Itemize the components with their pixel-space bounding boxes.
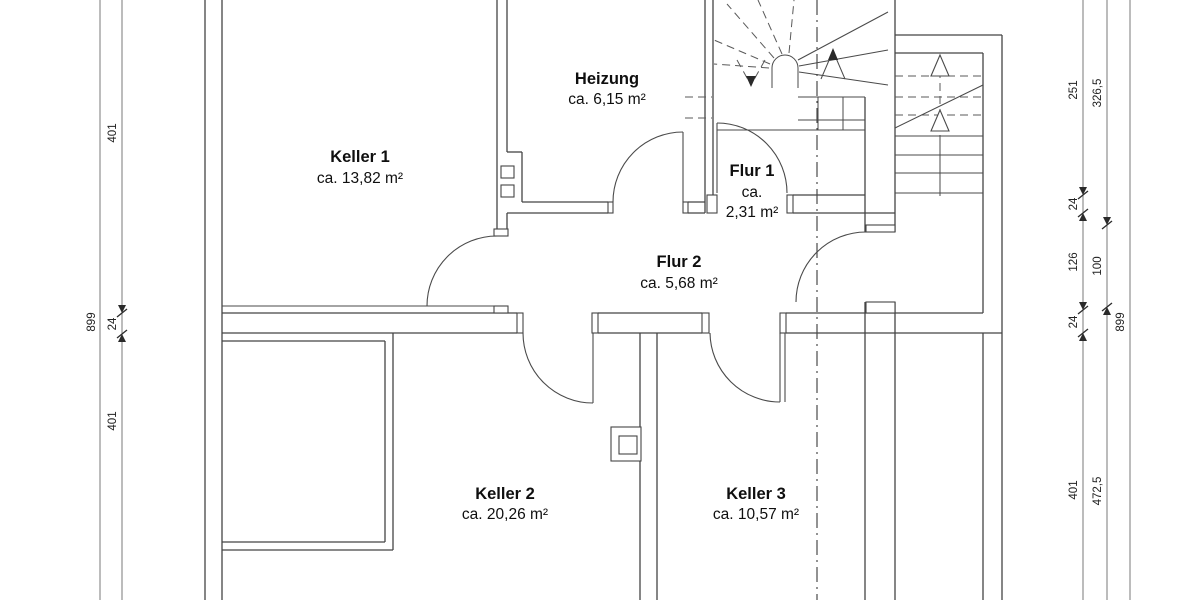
room-label-flur2: Flur 2 bbox=[657, 253, 702, 271]
room-area-flur2: ca. 5,68 m² bbox=[640, 275, 718, 292]
keller2-partition bbox=[222, 333, 393, 550]
winder-staircase bbox=[685, 0, 888, 130]
straight-staircase bbox=[895, 55, 983, 196]
floor-plan-canvas: Keller 1 ca. 13,82 m² Heizung ca. 6,15 m… bbox=[0, 0, 1200, 600]
dim-left-top: 401 bbox=[107, 123, 119, 142]
room-area-heizung: ca. 6,15 m² bbox=[568, 91, 646, 108]
dim-right1-bottom: 401 bbox=[1068, 480, 1080, 499]
dim-right1-top: 251 bbox=[1068, 80, 1080, 99]
room-label-keller1: Keller 1 bbox=[330, 148, 390, 166]
dimension-labels-right: 251 24 126 24 401 326,5 100 472,5 899 bbox=[1068, 79, 1127, 506]
floor-plan-page: Keller 1 ca. 13,82 m² Heizung ca. 6,15 m… bbox=[0, 0, 1200, 600]
dim-right1-fourth: 24 bbox=[1068, 315, 1080, 328]
dim-right-overall: 899 bbox=[1115, 312, 1127, 331]
dimension-chain-right bbox=[1078, 0, 1130, 600]
room-labels: Keller 1 ca. 13,82 m² Heizung ca. 6,15 m… bbox=[317, 70, 799, 523]
dimension-chain-left bbox=[100, 0, 127, 600]
dim-left-overall: 899 bbox=[86, 312, 98, 331]
dimension-labels-left: 899 401 24 401 bbox=[86, 123, 119, 430]
dim-right2-top: 326,5 bbox=[1092, 79, 1104, 108]
room-label-keller3: Keller 3 bbox=[726, 485, 786, 503]
room-label-heizung: Heizung bbox=[575, 70, 639, 88]
room-label-keller2: Keller 2 bbox=[475, 485, 535, 503]
chimney-symbol bbox=[611, 427, 641, 461]
room-area-keller1: ca. 13,82 m² bbox=[317, 170, 403, 187]
dim-right1-second: 24 bbox=[1068, 197, 1080, 210]
flue-symbols bbox=[501, 166, 514, 197]
walls bbox=[205, 0, 1002, 600]
dim-left-middle: 24 bbox=[107, 317, 119, 330]
room-label-flur1: Flur 1 bbox=[730, 162, 775, 180]
room-area-keller3: ca. 10,57 m² bbox=[713, 506, 799, 523]
dim-right1-third: 126 bbox=[1068, 252, 1080, 271]
dim-right2-bottom: 472,5 bbox=[1092, 477, 1104, 506]
room-area-keller2: ca. 20,26 m² bbox=[462, 506, 548, 523]
room-area-flur1-line1: ca. bbox=[742, 184, 763, 201]
room-area-flur1-line2: 2,31 m² bbox=[726, 204, 779, 221]
dim-left-bottom: 401 bbox=[107, 411, 119, 430]
dim-right2-middle: 100 bbox=[1092, 256, 1104, 275]
